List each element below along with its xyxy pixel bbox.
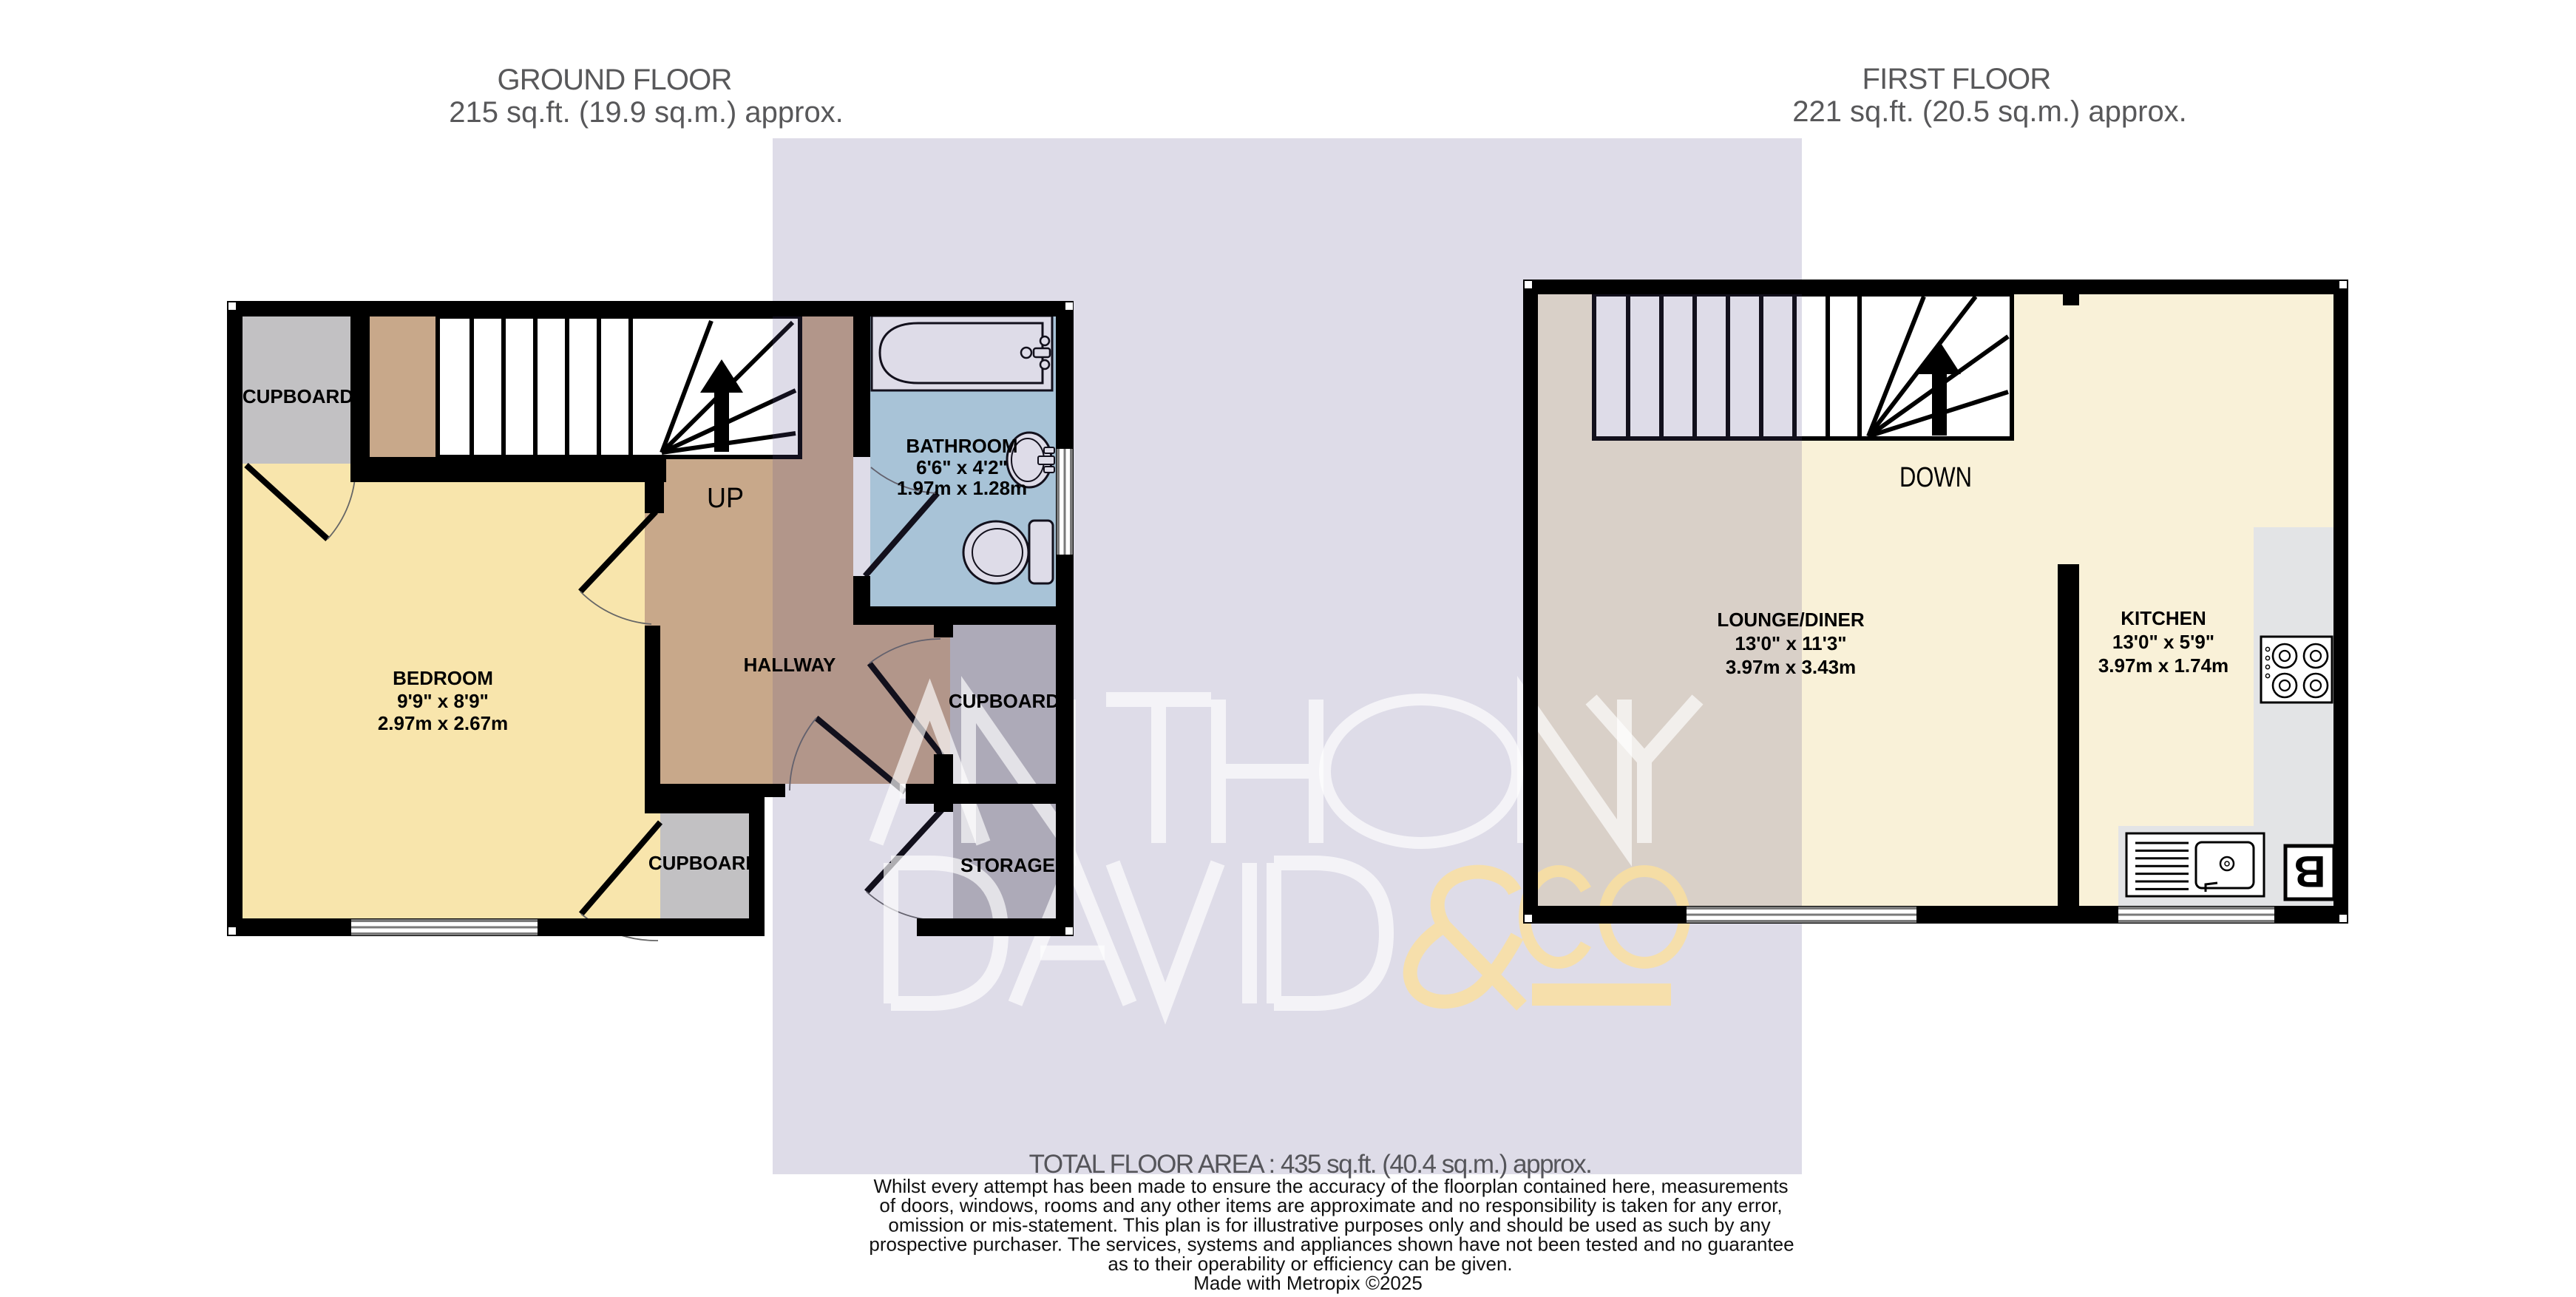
svg-text:GROUND FLOOR: GROUND FLOOR [497,64,731,96]
svg-text:BEDROOM: BEDROOM [393,667,493,689]
svg-text:CUPBOARD: CUPBOARD [949,690,1060,712]
svg-text:3.97m x 1.74m: 3.97m x 1.74m [2098,654,2228,677]
svg-text:STORAGE: STORAGE [960,854,1055,876]
svg-text:CUPBOARD: CUPBOARD [648,852,759,874]
svg-text:13'0" x 11'3": 13'0" x 11'3" [1735,632,1846,654]
svg-text:Made with Metropix ©2025: Made with Metropix ©2025 [1193,1272,1423,1294]
svg-text:6'6" x 4'2": 6'6" x 4'2" [916,456,1008,478]
svg-text:BATHROOM: BATHROOM [906,435,1017,457]
svg-text:9'9" x 8'9": 9'9" x 8'9" [397,690,489,712]
svg-text:B: B [2294,847,2325,896]
svg-text:FIRST FLOOR: FIRST FLOOR [1862,63,2051,95]
svg-text:2.97m x 2.67m: 2.97m x 2.67m [378,712,508,734]
svg-text:UP: UP [707,483,744,514]
svg-text:3.97m x 3.43m: 3.97m x 3.43m [1726,656,1856,678]
svg-text:HALLWAY: HALLWAY [744,654,836,676]
svg-text:1.97m x 1.28m: 1.97m x 1.28m [897,477,1027,499]
svg-text:CUPBOARD: CUPBOARD [243,385,353,407]
svg-text:KITCHEN: KITCHEN [2121,607,2206,629]
svg-text:215 sq.ft. (19.9 sq.m.) approx: 215 sq.ft. (19.9 sq.m.) approx. [449,96,844,129]
svg-text:13'0" x 5'9": 13'0" x 5'9" [2112,631,2214,653]
svg-text:LOUNGE/DINER: LOUNGE/DINER [1717,609,1865,631]
svg-text:DOWN: DOWN [1899,462,1972,493]
svg-text:221 sq.ft. (20.5 sq.m.) approx: 221 sq.ft. (20.5 sq.m.) approx. [1792,95,2187,128]
